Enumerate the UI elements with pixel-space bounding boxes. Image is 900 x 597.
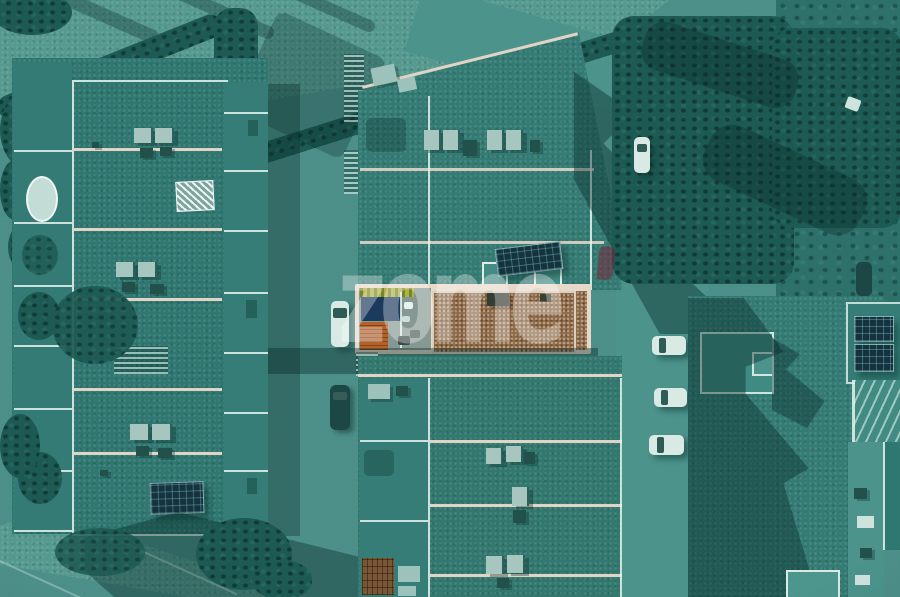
- roof-ac-unit: [116, 262, 135, 277]
- roof-ac-unit: [506, 130, 523, 150]
- balcony-shade: [247, 478, 257, 494]
- tree-canopy: [0, 414, 40, 478]
- terrace-divider: [14, 408, 72, 410]
- roof-divider: [430, 574, 622, 577]
- terrace-divider: [224, 412, 268, 414]
- roof-parapet: [883, 442, 885, 550]
- aerial-photo: zome: [0, 0, 900, 597]
- terrace-divider: [14, 530, 72, 532]
- alley-item: [855, 575, 870, 585]
- car-windshield: [637, 144, 647, 152]
- roof-vent: [100, 470, 108, 476]
- roof-vent: [530, 140, 540, 152]
- car-windshield: [661, 390, 668, 405]
- roof-ac-unit: [507, 555, 525, 573]
- roof-parapet: [620, 378, 622, 597]
- parked-car-dark: [856, 262, 872, 296]
- terrace-divider: [224, 292, 268, 294]
- terrace-divider: [224, 352, 268, 354]
- roof-ac-unit: [130, 424, 150, 440]
- roof-ac-unit: [506, 446, 523, 462]
- terrace-divider: [224, 170, 268, 172]
- parked-car-white: [649, 435, 684, 455]
- parked-car-white: [654, 388, 687, 407]
- roof-ac-unit: [524, 452, 535, 464]
- terrace-shade: [366, 118, 406, 152]
- roof-ac-unit: [136, 446, 149, 456]
- car-windshield: [659, 338, 666, 353]
- balcony-shade: [248, 120, 258, 136]
- alley-item: [854, 488, 867, 499]
- roof-ac-unit: [424, 130, 441, 150]
- spa-pool: [26, 176, 58, 222]
- roof-parapet: [428, 378, 430, 597]
- terrace-divider: [14, 150, 72, 152]
- roof-ac-unit: [158, 448, 172, 458]
- car-roof-highlight: [333, 392, 347, 400]
- tree-canopy: [52, 286, 138, 364]
- roof-ac-unit: [134, 128, 153, 143]
- roof-ac-unit: [140, 148, 153, 158]
- roof-cabin: [398, 566, 420, 582]
- ridged-roof-building: [854, 380, 900, 442]
- parked-car-white: [652, 336, 686, 355]
- terrace-divider: [14, 222, 72, 224]
- roof-divider: [430, 440, 622, 443]
- roof-ac-unit: [443, 130, 460, 150]
- terrace-divider: [360, 520, 428, 522]
- terrace-plants: [22, 235, 58, 275]
- solar-panel-array: [854, 316, 894, 342]
- roof-ac-unit: [486, 448, 503, 464]
- roof-parapet: [852, 380, 855, 442]
- skylight: [175, 180, 215, 212]
- car-windshield: [657, 437, 664, 453]
- roof-cabin: [368, 384, 390, 399]
- roof-ac-unit: [463, 140, 477, 156]
- terrace-divider: [224, 112, 268, 114]
- parked-car-white: [634, 137, 650, 173]
- terrace-divider: [360, 440, 428, 442]
- roof-ac-unit: [160, 147, 172, 156]
- roof-ac-unit: [486, 556, 504, 574]
- edge-building: [884, 442, 900, 550]
- roof-divider: [74, 228, 222, 231]
- terrace-divider: [224, 470, 268, 472]
- parked-car-dark: [330, 385, 350, 430]
- terrace-divider: [14, 285, 72, 287]
- roof-vent: [92, 142, 99, 148]
- alley-item: [857, 516, 874, 528]
- solar-panel-array: [854, 344, 894, 372]
- roof-cabin: [398, 586, 416, 596]
- tree-canopy: [252, 560, 312, 597]
- terrace-divider: [224, 230, 268, 232]
- roof-ac-unit: [512, 487, 529, 506]
- roof-divider: [74, 388, 222, 391]
- roof-ac-unit: [122, 282, 135, 292]
- roof-ac-unit: [487, 130, 504, 150]
- tree-canopy: [55, 528, 145, 576]
- watermark-text: zome: [338, 242, 590, 361]
- solar-panel-array: [149, 481, 204, 515]
- roof-ac-unit: [150, 284, 164, 294]
- roof-divider: [360, 168, 594, 171]
- balcony-shade: [246, 300, 257, 318]
- roof-ac-unit: [152, 424, 172, 440]
- roof-ac-unit: [497, 578, 509, 588]
- pergola: [362, 558, 394, 595]
- roof-parapet: [358, 374, 622, 377]
- roof-ac-unit: [396, 386, 408, 396]
- roof-ac-unit: [155, 128, 174, 143]
- garden-pool: [786, 570, 840, 597]
- alley-item: [860, 548, 872, 558]
- building-shadow: [268, 84, 300, 536]
- terrace-shade: [364, 450, 394, 476]
- roof-ac-unit: [513, 510, 526, 523]
- roof-ac-unit: [138, 262, 157, 277]
